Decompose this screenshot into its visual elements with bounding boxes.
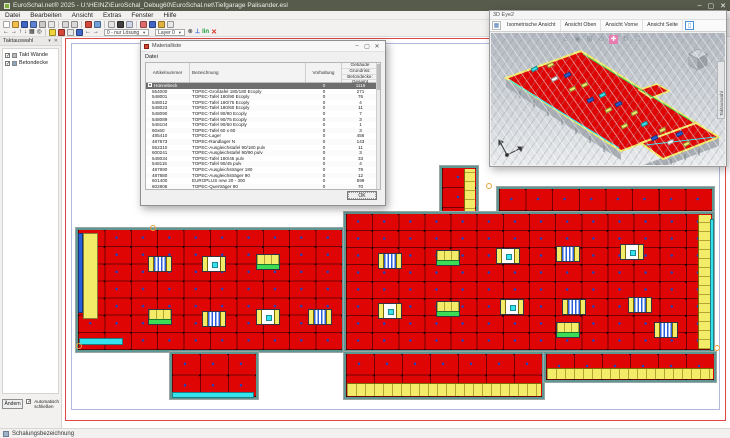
move-left-icon[interactable]: ← — [3, 29, 9, 36]
view-button-ansicht-vorne[interactable]: Ansicht Vorne — [601, 20, 643, 31]
change-button[interactable]: Ändern — [2, 399, 23, 409]
opening-shaft[interactable] — [378, 303, 402, 319]
deck-lower-right-ext[interactable] — [544, 352, 716, 382]
menu-datei[interactable]: Datei — [0, 12, 25, 19]
material-table: Artikelnummer Bezeichnung Vorhaltung Geb… — [145, 62, 381, 190]
minimize-button[interactable]: – — [698, 2, 702, 10]
opening-shaft[interactable] — [202, 256, 226, 272]
table-cell: TOPEC-Querträger 90 — [190, 184, 306, 190]
paint-icon[interactable] — [85, 21, 92, 28]
opening-stripe[interactable] — [562, 299, 586, 315]
opening-stripe[interactable] — [628, 297, 652, 313]
save-all-icon[interactable] — [30, 21, 37, 28]
zoom-window-icon[interactable]: ⊞ — [585, 35, 594, 44]
redo-icon[interactable] — [71, 21, 78, 28]
maximize-button[interactable]: ▢ — [708, 2, 715, 10]
move-right-icon[interactable]: → — [11, 29, 17, 36]
menu-ansicht[interactable]: Ansicht — [67, 12, 98, 19]
layer-select[interactable]: Layer 0▼ — [155, 29, 185, 36]
prev-solution-icon[interactable]: ← — [85, 29, 91, 36]
ortho-toggle[interactable]: ⊥ — [195, 29, 200, 36]
new-file-icon[interactable] — [3, 21, 10, 28]
grid-icon[interactable] — [126, 21, 133, 28]
col-vorhaltung: Vorhaltung — [306, 63, 342, 82]
toolbar-separator — [104, 21, 105, 28]
lin-toggle[interactable]: lin — [202, 29, 209, 36]
opening-shaft[interactable] — [256, 309, 280, 325]
opening-stripe[interactable] — [308, 309, 332, 325]
edge-strip — [710, 219, 714, 351]
panel-close-icon[interactable]: ✕ — [54, 38, 58, 44]
viewer-grid-icon[interactable]: ▦ — [492, 21, 501, 30]
auto-close-checkbox[interactable]: ✓ — [26, 399, 31, 404]
opening-stripe[interactable] — [202, 311, 226, 327]
solution-select[interactable]: 0 - nur Lösung▼ — [104, 29, 149, 36]
deck-lower-left-ext[interactable] — [344, 352, 544, 399]
table-cell: 70 — [342, 184, 379, 190]
slab-icon — [12, 61, 17, 66]
material-list-dialog: Materialliste – ▢ ✕ Datei Artikelnummer … — [140, 40, 386, 206]
rotate-icon[interactable]: ↻ — [621, 35, 630, 44]
tree-item-label: Takt Wände — [19, 52, 48, 58]
opening-green[interactable] — [436, 301, 460, 317]
takt-panel: Taktauswahl ▾ ✕ ✓Takt Wände✓Betondecke Ä… — [0, 37, 62, 428]
undo-icon[interactable] — [62, 21, 69, 28]
dialog-maximize-icon[interactable]: ▢ — [362, 43, 372, 50]
opening-shaft[interactable] — [496, 248, 520, 264]
save-icon[interactable] — [21, 21, 28, 28]
viewport-overlay-icons: ⌂◉⊞⊙✚↻⛶ — [561, 35, 642, 44]
viewer-viewport[interactable]: ⌂◉⊞⊙✚↻⛶ Taktauswahl — [491, 33, 725, 165]
tree-item-wall[interactable]: ✓Takt Wände — [5, 51, 56, 59]
zoom-icon[interactable]: ⊙ — [597, 35, 606, 44]
col-bezeichnung: Bezeichnung — [190, 63, 306, 82]
table-cell: 602806 — [146, 184, 190, 190]
viewer-side-tab[interactable]: Taktauswahl — [717, 61, 725, 119]
cancel-icon[interactable]: ✕ — [211, 29, 217, 36]
col-artikelnummer: Artikelnummer — [146, 63, 190, 82]
tree-item-slab[interactable]: ✓Betondecke — [5, 59, 56, 67]
takt-panel-title: Taktauswahl — [3, 38, 33, 44]
viewer-3d-window: 3D Eye2 ▦ Isometrische AnsichtAnsicht Ob… — [489, 10, 727, 167]
toolbar-separator — [81, 21, 82, 28]
fit-view-icon[interactable]: ⛶ — [633, 35, 642, 44]
dialog-title-bar[interactable]: Materialliste – ▢ ✕ — [141, 41, 385, 52]
view-button-ansicht-oben[interactable]: Ansicht Oben — [561, 20, 602, 31]
viewer-panel-icon[interactable]: ▯ — [685, 21, 694, 30]
edge-strip — [79, 338, 123, 345]
edge-strip — [83, 233, 98, 319]
opening-stripe[interactable] — [556, 246, 580, 262]
dialog-close-icon[interactable]: ✕ — [372, 43, 382, 50]
opening-green[interactable] — [556, 322, 580, 338]
opening-stripe[interactable] — [654, 322, 678, 338]
pan-icon[interactable]: ✚ — [609, 35, 618, 44]
col-gesamt-group: Gebäude Grundriss: Betondecke: Gesamt — [342, 63, 379, 82]
orbit-icon[interactable]: ◉ — [573, 35, 582, 44]
home-view-icon[interactable]: ⌂ — [561, 35, 570, 44]
yellow-edge-panels — [347, 383, 541, 396]
list-view-icon[interactable] — [67, 29, 74, 36]
selection-handle[interactable] — [486, 183, 492, 189]
toolbar-separator — [45, 29, 46, 36]
edge-strip — [172, 392, 254, 398]
view-button-ansicht-seite[interactable]: Ansicht Seite — [643, 20, 683, 31]
close-button[interactable]: ✕ — [720, 2, 726, 10]
move-up-icon[interactable]: ↑ — [19, 29, 22, 36]
add-element-icon[interactable] — [140, 21, 147, 28]
opening-green[interactable] — [256, 254, 280, 270]
move-down-icon[interactable]: ↓ — [24, 29, 27, 36]
next-solution-icon[interactable]: → — [93, 29, 99, 36]
yellow-edge-panels — [547, 368, 713, 379]
takt-tree: ✓Takt Wände✓Betondecke — [2, 48, 59, 394]
opening-green[interactable] — [148, 309, 172, 325]
dialog-menu-datei[interactable]: Datei — [145, 54, 158, 60]
print-icon[interactable] — [39, 21, 46, 28]
window-title: EuroSchal.net® 2025 - U:\HEINZ\EuroSchal… — [13, 2, 698, 9]
selection-handle[interactable] — [150, 225, 156, 231]
takt-red-icon[interactable] — [58, 29, 65, 36]
selection-handle[interactable] — [714, 345, 720, 351]
menu-fenster[interactable]: Fenster — [126, 12, 158, 19]
view-button-isometrische-ansicht[interactable]: Isometrische Ansicht — [503, 20, 561, 31]
panel-blue-icon[interactable] — [149, 21, 156, 28]
deck-left-block[interactable] — [76, 228, 344, 352]
dialog-title: Materialliste — [152, 43, 181, 49]
wall-icon — [12, 53, 17, 58]
ok-button[interactable]: OK — [347, 191, 377, 200]
status-bar: Schalungsbezeichnung — [0, 428, 730, 438]
magnifier-icon[interactable]: ◎ — [37, 29, 42, 36]
print-preview-icon[interactable] — [48, 21, 55, 28]
toolbar-separator — [58, 21, 59, 28]
viewer-toolbar: ▦ Isometrische AnsichtAnsicht ObenAnsich… — [490, 20, 726, 32]
application-window: EuroSchal.net® 2025 - U:\HEINZ\EuroSchal… — [0, 0, 730, 438]
viewer-title: 3D Eye2 — [493, 12, 514, 18]
pin-icon[interactable]: ▾ — [48, 38, 51, 44]
opening-stripe[interactable] — [378, 253, 402, 269]
render-icon[interactable] — [94, 21, 101, 28]
dialog-minimize-icon[interactable]: – — [352, 43, 362, 49]
measure-icon[interactable] — [108, 21, 115, 28]
tree-item-label: Betondecke — [19, 60, 48, 66]
auto-close-label: Automatisch schließen — [34, 399, 59, 409]
table-header: Artikelnummer Bezeichnung Vorhaltung Geb… — [146, 63, 380, 83]
menu-hilfe[interactable]: Hilfe — [158, 12, 181, 19]
tree-checkbox[interactable]: ✓ — [5, 61, 10, 66]
cursor-icon[interactable] — [117, 21, 124, 28]
iso-grid-background — [491, 33, 725, 165]
cube-view-icon[interactable] — [76, 29, 83, 36]
table-cell: 0 — [306, 184, 342, 190]
selection-handle[interactable] — [76, 343, 82, 349]
status-text: Schalungsbezeichnung — [12, 431, 74, 437]
table-body: −Hünnebeck01116554000TOPEC-Großtafel 180… — [146, 83, 380, 189]
table-row[interactable]: 602806TOPEC-Querträger 90070 — [146, 184, 380, 190]
status-icon — [3, 431, 9, 437]
app-icon — [4, 3, 10, 9]
takt-yellow-icon[interactable] — [49, 29, 56, 36]
opening-stripe[interactable] — [148, 256, 172, 272]
menu-bearbeiten[interactable]: Bearbeiten — [25, 12, 66, 19]
raster-icon[interactable]: ▦ — [29, 29, 35, 36]
opening-shaft[interactable] — [500, 299, 524, 315]
dialog-icon — [144, 44, 149, 49]
toolbar-separator — [136, 21, 137, 28]
opening-green[interactable] — [436, 250, 460, 266]
menu-extras[interactable]: Extras — [98, 12, 126, 19]
deck-top-strip[interactable] — [497, 187, 714, 213]
table-scrollbar[interactable] — [376, 63, 380, 189]
opening-shaft[interactable] — [620, 244, 644, 260]
tree-checkbox[interactable]: ✓ — [5, 53, 10, 58]
link-icon[interactable]: ⊗ — [188, 29, 193, 36]
open-folder-icon[interactable] — [12, 21, 19, 28]
zoom-tool-icon[interactable] — [167, 21, 174, 28]
panel-color-icon[interactable] — [158, 21, 165, 28]
